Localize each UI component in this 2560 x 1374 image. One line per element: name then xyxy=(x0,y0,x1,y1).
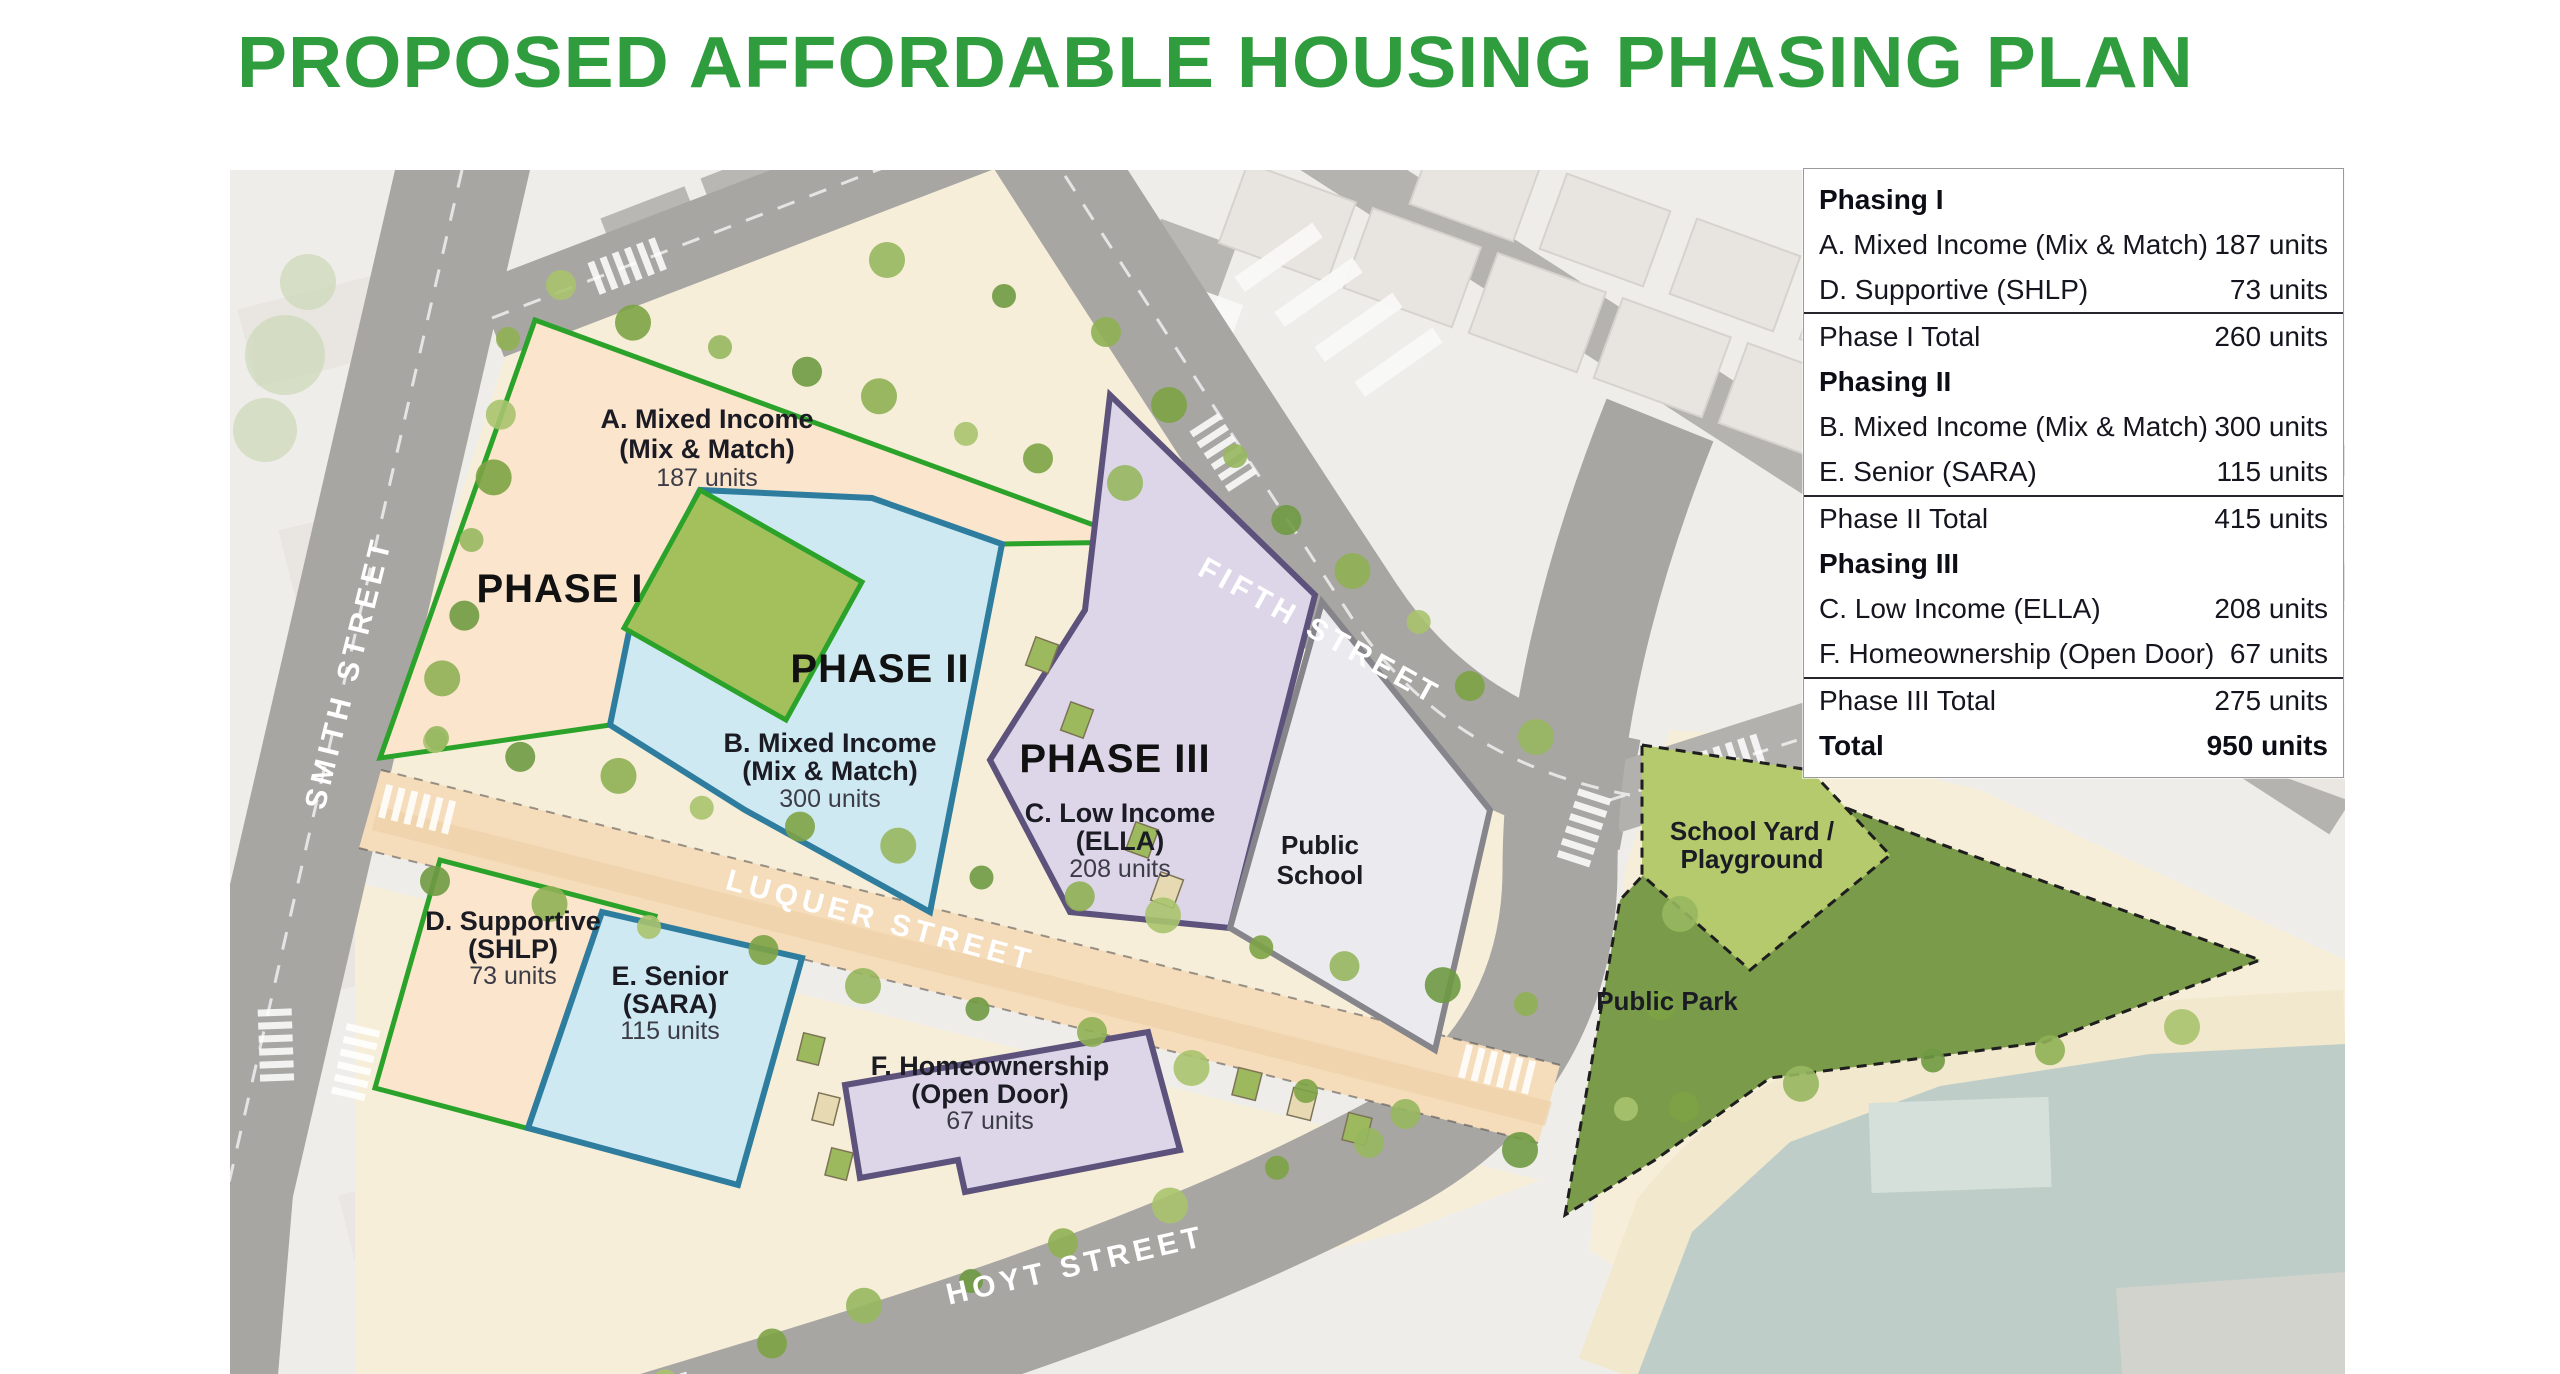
table-row: C. Low Income (ELLA)208 units xyxy=(1804,587,2343,632)
table-row: Phase I Total260 units xyxy=(1804,314,2343,359)
table-row-label: Phasing II xyxy=(1819,368,1951,396)
phasing-summary-table: Phasing IA. Mixed Income (Mix & Match)18… xyxy=(1803,168,2344,778)
table-row-value: 300 units xyxy=(2214,413,2328,441)
playground-label: School Yard / Playground xyxy=(1670,816,1834,874)
svg-text:School: School xyxy=(1277,860,1364,890)
svg-text:School Yard /: School Yard / xyxy=(1670,816,1834,846)
table-row: Phase III Total275 units xyxy=(1804,679,2343,724)
svg-text:F. Homeownership: F. Homeownership xyxy=(871,1051,1110,1081)
table-row-label: Phasing I xyxy=(1819,186,1943,214)
side-street xyxy=(250,990,282,1374)
svg-text:(Open Door): (Open Door) xyxy=(911,1079,1068,1109)
svg-text:A. Mixed Income: A. Mixed Income xyxy=(600,404,813,434)
svg-text:(ELLA): (ELLA) xyxy=(1076,826,1164,856)
table-row-label: C. Low Income (ELLA) xyxy=(1819,595,2101,623)
table-row-value: 187 units xyxy=(2214,231,2328,259)
svg-text:115 units: 115 units xyxy=(620,1017,720,1045)
public-school-label: Public School xyxy=(1277,830,1364,890)
svg-text:67 units: 67 units xyxy=(946,1107,1034,1135)
table-section-header: Phasing II xyxy=(1804,359,2343,404)
table-section-header: Phasing III xyxy=(1804,542,2343,587)
table-row: A. Mixed Income (Mix & Match)187 units xyxy=(1804,222,2343,267)
table-row: F. Homeownership (Open Door)67 units xyxy=(1804,632,2343,679)
svg-text:Public: Public xyxy=(1281,830,1359,860)
table-row: Phase II Total415 units xyxy=(1804,497,2343,542)
table-row: E. Senior (SARA)115 units xyxy=(1804,449,2343,496)
table-row-label: A. Mixed Income (Mix & Match) xyxy=(1819,231,2208,259)
table-row: Total950 units xyxy=(1804,724,2343,769)
svg-text:Playground: Playground xyxy=(1680,844,1823,874)
svg-text:(Mix & Match): (Mix & Match) xyxy=(742,756,918,786)
table-row-value: 208 units xyxy=(2214,595,2328,623)
svg-text:E. Senior: E. Senior xyxy=(611,961,729,991)
table-row-value: 260 units xyxy=(2214,323,2328,351)
table-row-value: 415 units xyxy=(2214,505,2328,533)
svg-text:300 units: 300 units xyxy=(779,785,880,813)
table-row-label: E. Senior (SARA) xyxy=(1819,458,2037,486)
svg-text:(SHLP): (SHLP) xyxy=(468,934,558,964)
parcel-e-label: E. Senior (SARA) 115 units xyxy=(611,961,729,1045)
table-row-label: F. Homeownership (Open Door) xyxy=(1819,640,2214,668)
table-row-label: Phase III Total xyxy=(1819,687,1996,715)
table-row: B. Mixed Income (Mix & Match)300 units xyxy=(1804,404,2343,449)
phase3-label: PHASE III xyxy=(1019,737,1210,781)
public-park-label: Public Park xyxy=(1596,986,1738,1016)
table-row-value: 67 units xyxy=(2230,640,2328,668)
phase1-label: PHASE I xyxy=(476,567,643,611)
svg-text:73 units: 73 units xyxy=(469,962,557,990)
svg-text:208 units: 208 units xyxy=(1069,855,1170,883)
table-row-label: D. Supportive (SHLP) xyxy=(1819,276,2088,304)
table-row-value: 275 units xyxy=(2214,687,2328,715)
table-row-value: 73 units xyxy=(2230,276,2328,304)
svg-text:(Mix & Match): (Mix & Match) xyxy=(619,434,795,464)
page-title: PROPOSED AFFORDABLE HOUSING PHASING PLAN xyxy=(237,22,2194,104)
svg-text:C. Low Income: C. Low Income xyxy=(1025,798,1216,828)
table-row: D. Supportive (SHLP)73 units xyxy=(1804,267,2343,314)
table-row-label: Total xyxy=(1819,732,1884,760)
phase2-label: PHASE II xyxy=(790,647,969,691)
svg-text:D. Supportive: D. Supportive xyxy=(425,906,601,936)
table-row-label: B. Mixed Income (Mix & Match) xyxy=(1819,413,2208,441)
table-section-header: Phasing I xyxy=(1804,177,2343,222)
table-row-label: Phase I Total xyxy=(1819,323,1980,351)
svg-text:187 units: 187 units xyxy=(656,464,757,492)
table-row-label: Phasing III xyxy=(1819,550,1959,578)
table-row-label: Phase II Total xyxy=(1819,505,1988,533)
table-row-value: 950 units xyxy=(2207,732,2328,760)
svg-text:(SARA): (SARA) xyxy=(623,989,718,1019)
svg-text:B. Mixed Income: B. Mixed Income xyxy=(723,728,936,758)
table-row-value: 115 units xyxy=(2216,458,2328,486)
